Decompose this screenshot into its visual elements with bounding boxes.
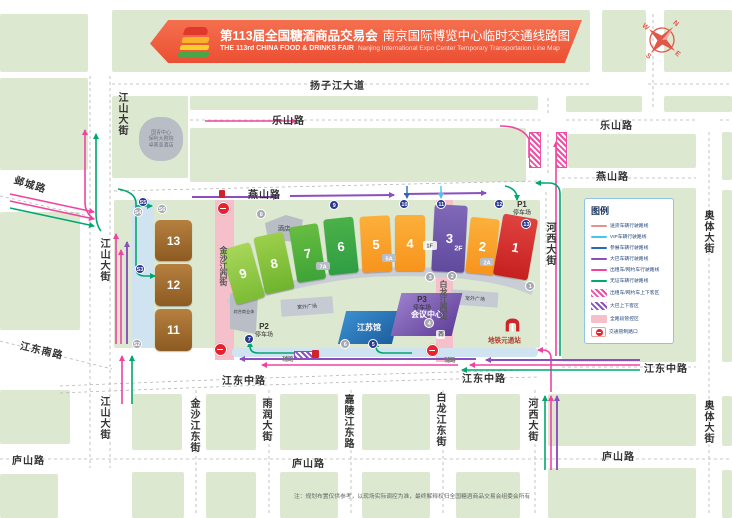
legend-route-item: 无证车辆行驶路线 — [591, 275, 668, 286]
metro-logo-icon — [504, 317, 521, 334]
legend-zone-swatch — [591, 302, 607, 310]
legend-zone-swatch — [591, 315, 607, 323]
commercial-complex-label: 综合商业体 — [234, 309, 255, 314]
no-entry-icon — [591, 327, 606, 337]
road-label-jiangshan: 江山大街 — [96, 396, 111, 440]
legend-route-item: 送货车辆行驶路线 — [591, 220, 668, 231]
traffic-sign-icon — [219, 190, 225, 198]
legend-zone-item: 全路段管控区 — [591, 312, 668, 325]
metro-entrance-icon — [312, 350, 319, 358]
legend-zone-swatch — [591, 289, 607, 297]
jiangsu-hall-label: 江苏馆 — [357, 322, 381, 333]
legend-line-swatch — [591, 247, 607, 249]
road-label-bailongjiang-east: 白龙江东街 — [432, 392, 447, 447]
compass-icon: N E S W — [636, 14, 688, 66]
road-label-jiangdong-middle: 江东中路 — [644, 360, 688, 375]
jiangsu-hall-building: 江苏馆 — [338, 311, 400, 344]
annex-7a-label: 7A — [316, 262, 330, 270]
guoqing-label-3: 卓美亚酒店 — [149, 142, 174, 148]
road-label-hexi: 河西大街 — [524, 398, 539, 442]
road-label-service-road: 辅路 — [282, 356, 293, 364]
road-label-lushan: 庐山路 — [602, 448, 635, 463]
legend-route-item: 参展车辆行驶路线 — [591, 242, 668, 253]
compass-w: W — [640, 22, 650, 32]
road-label-leshan: 乐山路 — [272, 112, 305, 127]
west-badge: 西 — [436, 330, 445, 339]
traffic-control-icon — [426, 344, 439, 357]
outdoor-plaza-label: 室外广场 — [297, 303, 317, 311]
outdoor-plaza-label: 室外广场 — [464, 295, 484, 303]
legend-title: 图例 — [591, 204, 668, 217]
legend-zone-item: 出租车/网约车上下客区 — [591, 286, 668, 299]
fair-logo-icon — [178, 27, 212, 57]
traffic-control-icon — [217, 202, 230, 215]
guoqing-center-building: 国青中心 保利大剧院 卓美亚酒店 — [139, 117, 183, 161]
parking-p3-label: P3停车场 — [404, 296, 440, 314]
compass-n: N — [671, 20, 679, 29]
legend-line-swatch — [591, 269, 607, 271]
legend-route-item: VIP车辆行驶路线 — [591, 231, 668, 242]
road-label-aoti: 奥体大街 — [700, 210, 715, 254]
legend-panel: 图例 送货车辆行驶路线VIP车辆行驶路线参展车辆行驶路线大巴车辆行驶路线出租车/… — [584, 198, 674, 344]
road-label-service-road: 辅路 — [444, 357, 455, 365]
hotel-label: 酒店 — [278, 225, 291, 233]
parking-p1-label: P1停车场 — [505, 201, 539, 219]
road-label-jinshajiang-west: 金沙江西街 — [218, 246, 229, 286]
legend-control-item: 交通管制路口 — [591, 325, 668, 338]
road-label-yanshan: 燕山路 — [596, 168, 629, 183]
taxi-pickup-zone-west — [529, 132, 541, 168]
road-label-lushan: 庐山路 — [12, 452, 45, 467]
compass-s: S — [644, 52, 652, 61]
road-label-jiangshan: 江山大街 — [96, 238, 111, 282]
road-label-yanshan: 燕山路 — [248, 186, 281, 201]
road-label-aoti: 奥体大街 — [700, 400, 715, 444]
outdoor-plaza-west: 室外广场 — [280, 296, 333, 317]
banner-title-en: THE 113rd CHINA FOOD & DRINKS FAIRNanjin… — [220, 45, 570, 53]
legend-route-item: 出租车/网约车行驶路线 — [591, 264, 668, 275]
legend-zone-item: 大巴上下客区 — [591, 299, 668, 312]
legend-line-swatch — [591, 280, 607, 282]
legend-line-swatch — [591, 225, 607, 227]
disclaimer-note: 注：规划布置仅供参考，以现场实际调控为准，最终解释权归全国糖酒商品交易会组委会所… — [294, 492, 510, 500]
legend-line-swatch — [591, 258, 607, 260]
annex-2a-label: 2A — [480, 258, 494, 266]
road-label-yurun: 雨润大街 — [258, 398, 273, 442]
road-label-yangzijiang: 扬子江大道 — [310, 77, 365, 92]
legend-rows: 送货车辆行驶路线VIP车辆行驶路线参展车辆行驶路线大巴车辆行驶路线出租车/网约车… — [591, 220, 668, 338]
road-label-jiangshan: 江山大街 — [114, 92, 129, 136]
road-label-lushan: 庐山路 — [292, 455, 325, 470]
road-label-jiangdong-middle: 江东中路 — [222, 372, 266, 387]
annex-5a-label: 5A — [382, 254, 396, 262]
road-label-hexi: 河西大街 — [542, 222, 557, 266]
traffic-control-icon — [214, 343, 227, 356]
road-label-leshan: 乐山路 — [600, 117, 633, 132]
compass-e: E — [673, 50, 681, 59]
taxi-pickup-zone-east — [556, 132, 567, 168]
banner-title-cn: 第113届全国糖酒商品交易会南京国际博览中心临时交通线路图 — [220, 29, 570, 45]
legend-line-swatch — [591, 236, 607, 238]
legend-route-item: 大巴车辆行驶路线 — [591, 253, 668, 264]
road-label-jialingjiang-east: 嘉陵江东路 — [340, 394, 355, 449]
road-label-bailongjiang-west: 白龙江西街 — [438, 280, 449, 320]
road-label-jinshajiang-east: 金沙江东街 — [186, 398, 201, 453]
parking-p2-label: P2停车场 — [246, 323, 282, 341]
metro-station-label: 地铁元通站 — [488, 336, 531, 345]
transportation-map: 国青中心 保利大剧院 卓美亚酒店 酒店 综合商业体 室外广场 室外广场 江苏馆 … — [0, 0, 732, 518]
road-label-jiangdong-middle: 江东中路 — [462, 370, 506, 385]
hall1f-label: 1F — [423, 241, 437, 250]
title-banner: 第113届全国糖酒商品交易会南京国际博览中心临时交通线路图 THE 113rd … — [150, 20, 582, 63]
